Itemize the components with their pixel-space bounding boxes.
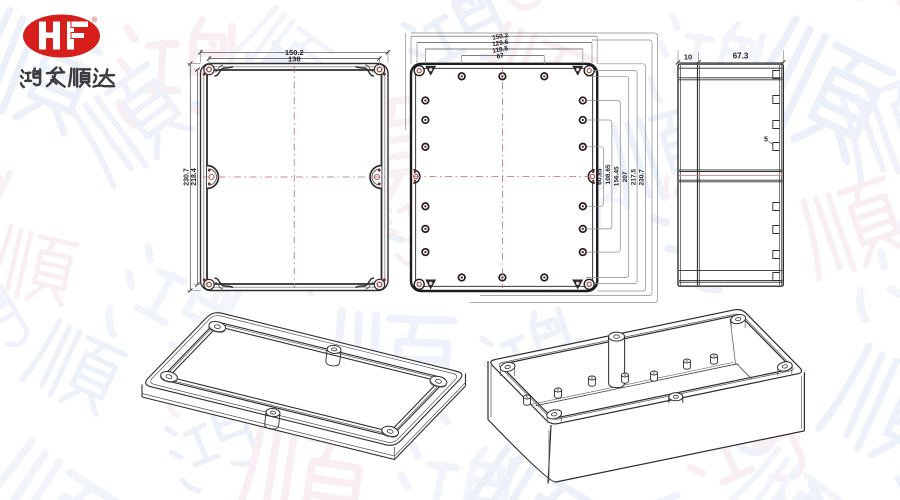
svg-text:67.3: 67.3 [733, 52, 749, 61]
svg-text:5: 5 [764, 137, 768, 144]
svg-text:®: ® [92, 16, 98, 24]
svg-text:217.5: 217.5 [630, 169, 637, 186]
svg-text:230.7: 230.7 [639, 169, 646, 186]
svg-text:230.7: 230.7 [184, 168, 191, 186]
svg-text:60.85: 60.85 [597, 168, 604, 185]
svg-text:138: 138 [288, 55, 301, 64]
svg-text:207: 207 [622, 171, 629, 182]
svg-text:218.4: 218.4 [191, 168, 198, 186]
svg-text:108.65: 108.65 [605, 164, 612, 184]
svg-text:156.45: 156.45 [614, 166, 621, 186]
svg-text:10: 10 [684, 53, 692, 62]
